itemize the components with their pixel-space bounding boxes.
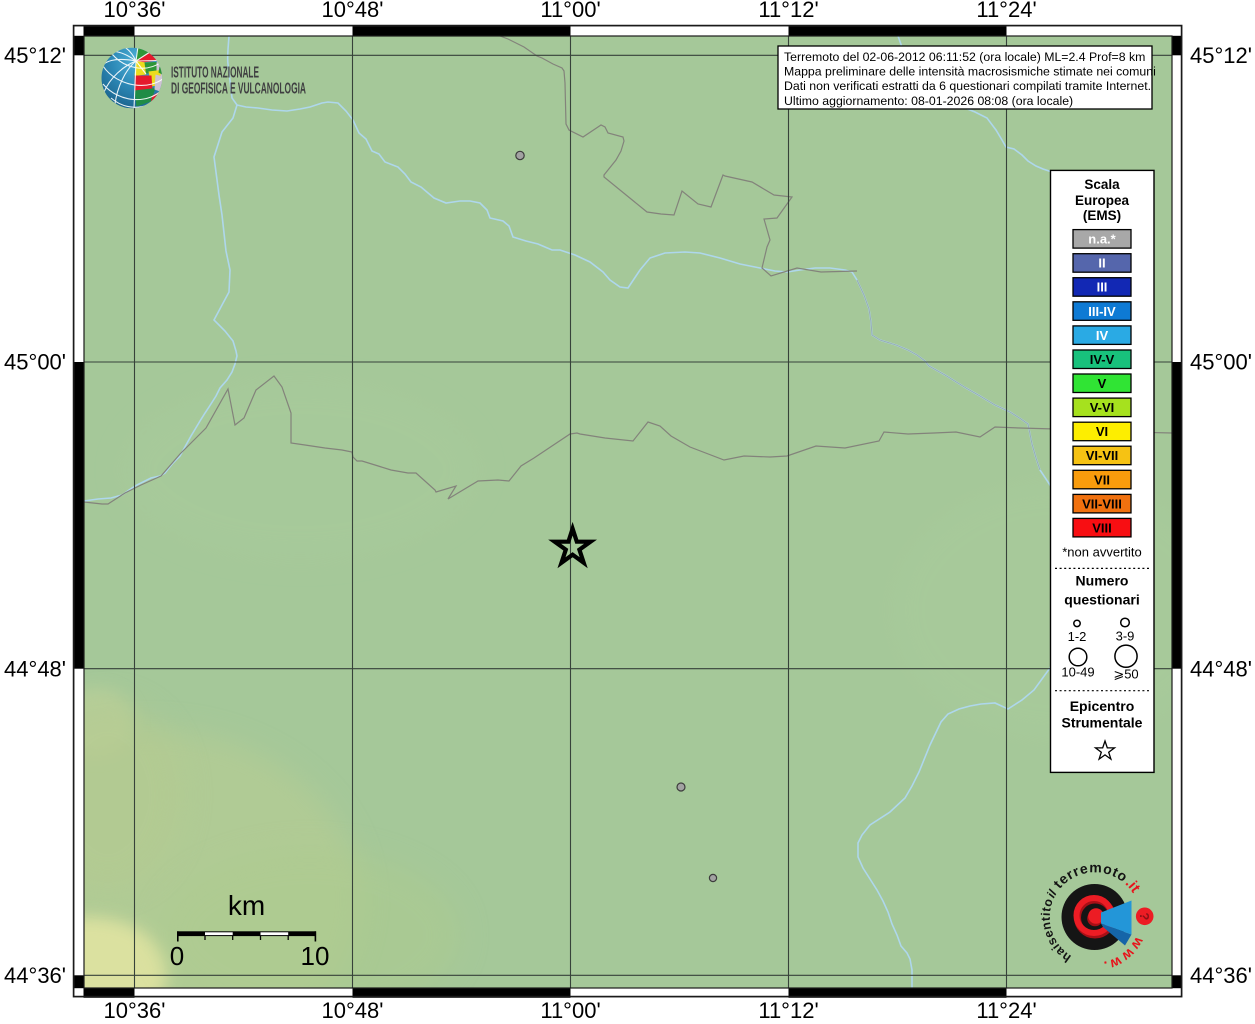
svg-text:1-2: 1-2 bbox=[1068, 629, 1087, 644]
svg-text:II: II bbox=[1098, 256, 1105, 271]
svg-text:VI-VII: VI-VII bbox=[1086, 448, 1119, 463]
svg-text:Dati non verificati estratti d: Dati non verificati estratti da 6 questi… bbox=[784, 79, 1151, 93]
svg-text:VI: VI bbox=[1096, 424, 1108, 439]
svg-text:10°48': 10°48' bbox=[322, 998, 384, 1023]
svg-text:V: V bbox=[1098, 376, 1107, 391]
svg-text:0: 0 bbox=[170, 941, 184, 971]
svg-text:km: km bbox=[228, 890, 265, 921]
svg-text:10°36': 10°36' bbox=[104, 0, 166, 22]
svg-text:10°48': 10°48' bbox=[322, 0, 384, 22]
svg-text:⩾50: ⩾50 bbox=[1113, 666, 1138, 681]
svg-text:11°12': 11°12' bbox=[758, 998, 818, 1023]
svg-text:VII-VIII: VII-VIII bbox=[1082, 496, 1122, 511]
svg-text:?: ? bbox=[1137, 912, 1152, 920]
svg-text:V-VI: V-VI bbox=[1090, 400, 1115, 415]
svg-text:Terremoto del 02-06-2012 06:11: Terremoto del 02-06-2012 06:11:52 (ora l… bbox=[784, 50, 1145, 64]
svg-text:11°00': 11°00' bbox=[540, 998, 600, 1023]
svg-text:questionari: questionari bbox=[1064, 591, 1139, 607]
svg-text:10-49: 10-49 bbox=[1061, 665, 1094, 680]
svg-text:*non avvertito: *non avvertito bbox=[1062, 545, 1142, 560]
svg-text:VIII: VIII bbox=[1092, 520, 1112, 535]
svg-text:(EMS): (EMS) bbox=[1083, 208, 1121, 223]
svg-text:III-IV: III-IV bbox=[1088, 304, 1116, 319]
svg-text:45°00': 45°00' bbox=[4, 350, 66, 375]
svg-text:VII: VII bbox=[1094, 472, 1110, 487]
svg-text:45°00': 45°00' bbox=[1190, 350, 1252, 375]
svg-text:11°24': 11°24' bbox=[976, 998, 1036, 1023]
svg-text:DI GEOFISICA E VULCANOLOGIA: DI GEOFISICA E VULCANOLOGIA bbox=[171, 81, 306, 98]
svg-text:44°48': 44°48' bbox=[4, 656, 66, 681]
svg-text:IV: IV bbox=[1096, 328, 1109, 343]
svg-text:44°36': 44°36' bbox=[4, 963, 66, 988]
svg-text:44°48': 44°48' bbox=[1190, 656, 1252, 681]
svg-text:n.a.*: n.a.* bbox=[1088, 232, 1116, 247]
svg-text:III: III bbox=[1097, 280, 1108, 295]
svg-text:45°12': 45°12' bbox=[4, 43, 66, 68]
svg-text:ISTITUTO NAZIONALE: ISTITUTO NAZIONALE bbox=[171, 65, 259, 82]
svg-text:3-9: 3-9 bbox=[1116, 628, 1135, 643]
svg-text:45°12': 45°12' bbox=[1190, 43, 1252, 68]
svg-text:Epicentro: Epicentro bbox=[1070, 698, 1135, 714]
svg-text:Scala: Scala bbox=[1084, 177, 1120, 192]
svg-text:10: 10 bbox=[301, 941, 330, 971]
svg-text:Europea: Europea bbox=[1075, 193, 1130, 208]
svg-text:Numero: Numero bbox=[1076, 572, 1129, 588]
svg-text:Ultimo aggiornamento: 08-01-20: Ultimo aggiornamento: 08-01-2026 08:08 (… bbox=[784, 94, 1073, 108]
svg-text:11°24': 11°24' bbox=[976, 0, 1036, 22]
svg-text:Mappa preliminare delle intens: Mappa preliminare delle intensità macros… bbox=[784, 65, 1156, 79]
svg-text:11°12': 11°12' bbox=[758, 0, 818, 22]
svg-text:44°36': 44°36' bbox=[1190, 963, 1252, 988]
svg-text:Strumentale: Strumentale bbox=[1062, 714, 1143, 730]
svg-text:IV-V: IV-V bbox=[1090, 352, 1115, 367]
svg-text:11°00': 11°00' bbox=[540, 0, 600, 22]
svg-text:10°36': 10°36' bbox=[104, 998, 166, 1023]
